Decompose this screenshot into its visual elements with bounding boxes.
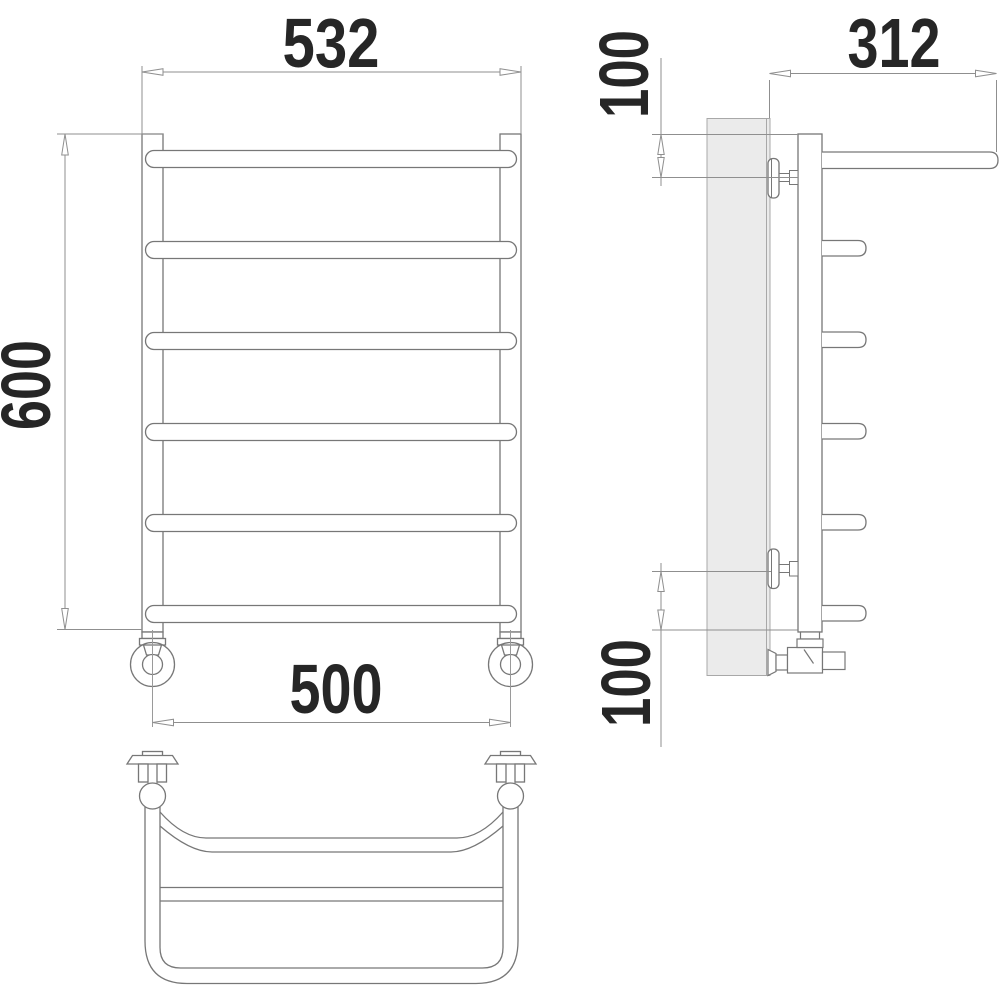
mount-plate — [485, 756, 536, 765]
arrowhead — [658, 610, 664, 630]
front-rung-5 — [146, 515, 517, 532]
dim-front-width-label: 532 — [283, 4, 380, 82]
top-bowed-rungs-inner — [160, 826, 503, 852]
mount-plate — [127, 756, 178, 765]
arrowhead — [658, 135, 664, 155]
front-rung-3 — [146, 333, 517, 350]
top-left-wall-mount — [127, 752, 178, 810]
arrowhead — [658, 158, 664, 178]
side-bottom-bracket — [768, 549, 798, 589]
top-view — [127, 752, 536, 984]
dim-front-height-label: 600 — [0, 340, 65, 430]
side-collector — [798, 134, 822, 632]
arrowhead — [976, 70, 997, 77]
dim-top-offset-label: 100 — [585, 30, 663, 118]
front-left-fitting — [131, 630, 175, 727]
front-rung-2 — [146, 242, 517, 259]
front-right-fitting — [489, 630, 533, 727]
dim-bottom-offset-label: 100 — [587, 639, 665, 727]
top-bowed-rungs-outer — [160, 812, 503, 838]
side-view — [707, 119, 998, 676]
front-view — [131, 134, 533, 727]
arrowhead — [500, 69, 521, 76]
arrowhead — [658, 572, 664, 592]
arrowhead — [770, 70, 791, 77]
drawing-page: 532 600 500 312 — [0, 0, 1000, 1000]
arrowhead — [62, 134, 69, 155]
side-rung-stub-1 — [822, 241, 866, 257]
front-rung-1 — [146, 151, 517, 168]
side-rung-stub-5 — [822, 606, 866, 622]
wall-strip — [707, 119, 770, 676]
side-top-bar — [822, 152, 998, 169]
side-top-bracket — [768, 159, 798, 199]
side-rung-stub-3 — [822, 424, 866, 440]
arrowhead — [153, 719, 174, 726]
side-valve-assembly — [768, 632, 845, 676]
side-rung-stub-4 — [822, 515, 866, 531]
arrowhead — [142, 69, 163, 76]
arrowhead — [490, 719, 511, 726]
technical-drawing-canvas: 532 600 500 312 — [0, 0, 1000, 1000]
front-right-collector — [500, 134, 521, 632]
dim-front-height: 600 — [0, 134, 163, 630]
top-right-wall-mount — [485, 752, 536, 810]
dim-side-depth: 312 — [770, 4, 997, 152]
dim-connection-spacing: 500 — [153, 650, 511, 728]
dim-connection-spacing-label: 500 — [290, 650, 383, 728]
front-rung-6 — [146, 606, 517, 623]
front-rung-4 — [146, 424, 517, 441]
top-straight-rail — [160, 888, 503, 902]
arrowhead — [62, 609, 69, 630]
mount-sphere — [498, 783, 524, 809]
dim-side-depth-label: 312 — [848, 4, 941, 82]
valve-outlet — [823, 652, 846, 670]
dim-front-width: 532 — [142, 4, 521, 134]
front-left-collector — [142, 134, 163, 632]
top-u-rail-outer — [145, 807, 518, 984]
mount-sphere — [140, 783, 166, 809]
side-rung-stub-2 — [822, 332, 866, 348]
